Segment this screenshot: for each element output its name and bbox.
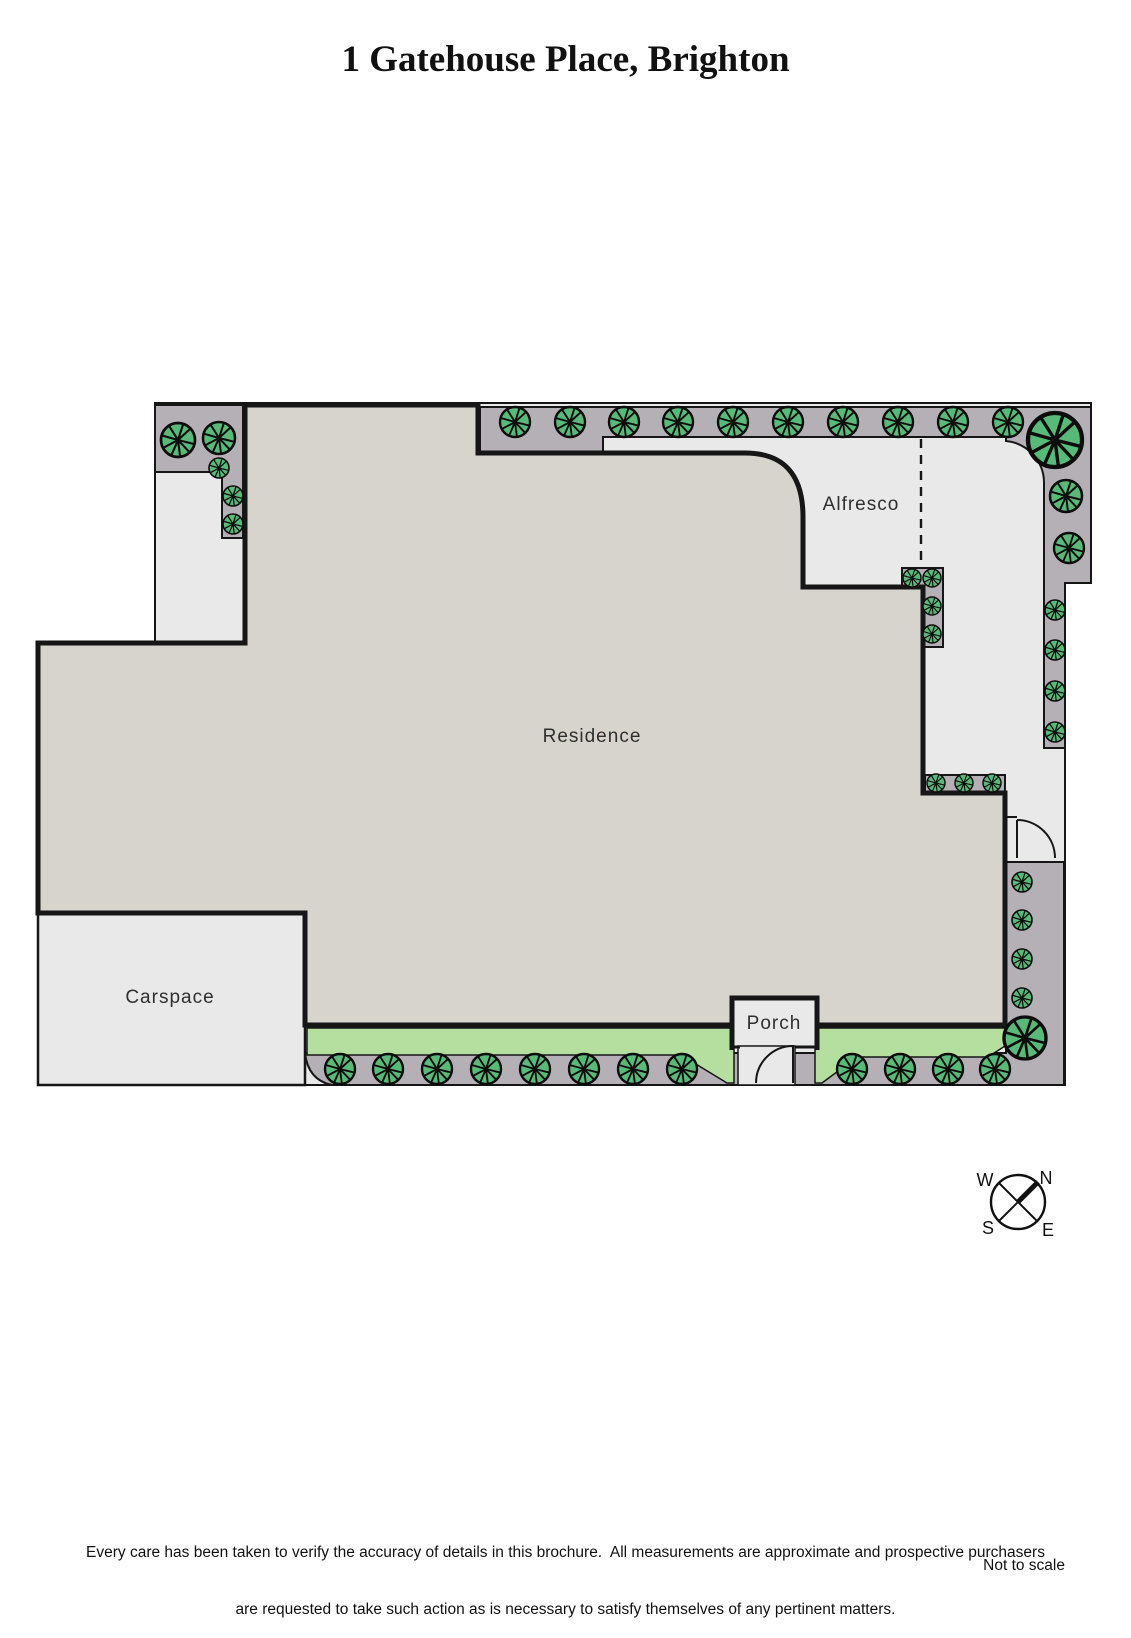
tree-icon bbox=[1050, 480, 1082, 512]
tree-icon bbox=[927, 774, 945, 792]
alfresco-label: Alfresco bbox=[823, 494, 900, 515]
tree-icon bbox=[223, 514, 243, 534]
tree-icon bbox=[203, 422, 235, 454]
tree-icon bbox=[223, 486, 243, 506]
tree-icon bbox=[555, 407, 585, 437]
tree-icon bbox=[828, 407, 858, 437]
tree-icon bbox=[609, 407, 639, 437]
tree-icon bbox=[373, 1054, 403, 1084]
tree-icon bbox=[520, 1054, 550, 1084]
tree-icon bbox=[885, 1054, 915, 1084]
tree-icon bbox=[1012, 988, 1032, 1008]
tree-icon bbox=[883, 407, 913, 437]
tree-icon bbox=[980, 1054, 1010, 1084]
tree-icon bbox=[773, 407, 803, 437]
compass-rose: W N S E bbox=[977, 1168, 1055, 1240]
tree-icon bbox=[1012, 949, 1032, 969]
tree-icon bbox=[422, 1054, 452, 1084]
site-plan: Residence Alfresco Carspace Porch W N S … bbox=[0, 0, 1131, 1600]
tree-icon bbox=[938, 407, 968, 437]
tree-icon bbox=[325, 1054, 355, 1084]
compass-e: E bbox=[1042, 1220, 1054, 1240]
disclaimer-line-1: Every care has been taken to verify the … bbox=[0, 1543, 1131, 1562]
tree-icon bbox=[923, 625, 941, 643]
tree-icon bbox=[618, 1054, 648, 1084]
disclaimer-line-2: are requested to take such action as is … bbox=[0, 1600, 1131, 1619]
tree-icon bbox=[667, 1054, 697, 1084]
tree-icon bbox=[209, 458, 229, 478]
tree-icon bbox=[1045, 722, 1065, 742]
tree-icon bbox=[923, 597, 941, 615]
tree-icon bbox=[933, 1054, 963, 1084]
carspace-label: Carspace bbox=[125, 987, 214, 1008]
tree-icon bbox=[1045, 600, 1065, 620]
tree-icon bbox=[903, 569, 921, 587]
tree-icon bbox=[1028, 413, 1082, 467]
tree-icon bbox=[500, 407, 530, 437]
tree-icon bbox=[1012, 910, 1032, 930]
porch-label: Porch bbox=[747, 1013, 802, 1034]
tree-icon bbox=[1054, 533, 1084, 563]
tree-icon bbox=[983, 774, 1001, 792]
tree-icon bbox=[837, 1054, 867, 1084]
tree-icon bbox=[923, 569, 941, 587]
tree-icon bbox=[569, 1054, 599, 1084]
tree-icon bbox=[1012, 872, 1032, 892]
disclaimer-text: Every care has been taken to verify the … bbox=[0, 1505, 1131, 1638]
tree-icon bbox=[718, 407, 748, 437]
tree-icon bbox=[161, 423, 195, 457]
tree-icon bbox=[1004, 1017, 1046, 1059]
compass-s: S bbox=[982, 1218, 994, 1238]
not-to-scale-label: Not to scale bbox=[983, 1557, 1065, 1575]
compass-w: W bbox=[977, 1170, 994, 1190]
tree-icon bbox=[955, 774, 973, 792]
tree-icon bbox=[1045, 681, 1065, 701]
tree-icon bbox=[1045, 640, 1065, 660]
tree-icon bbox=[471, 1054, 501, 1084]
residence-label: Residence bbox=[543, 726, 642, 747]
tree-icon bbox=[663, 407, 693, 437]
compass-n: N bbox=[1040, 1168, 1053, 1188]
tree-icon bbox=[993, 407, 1023, 437]
